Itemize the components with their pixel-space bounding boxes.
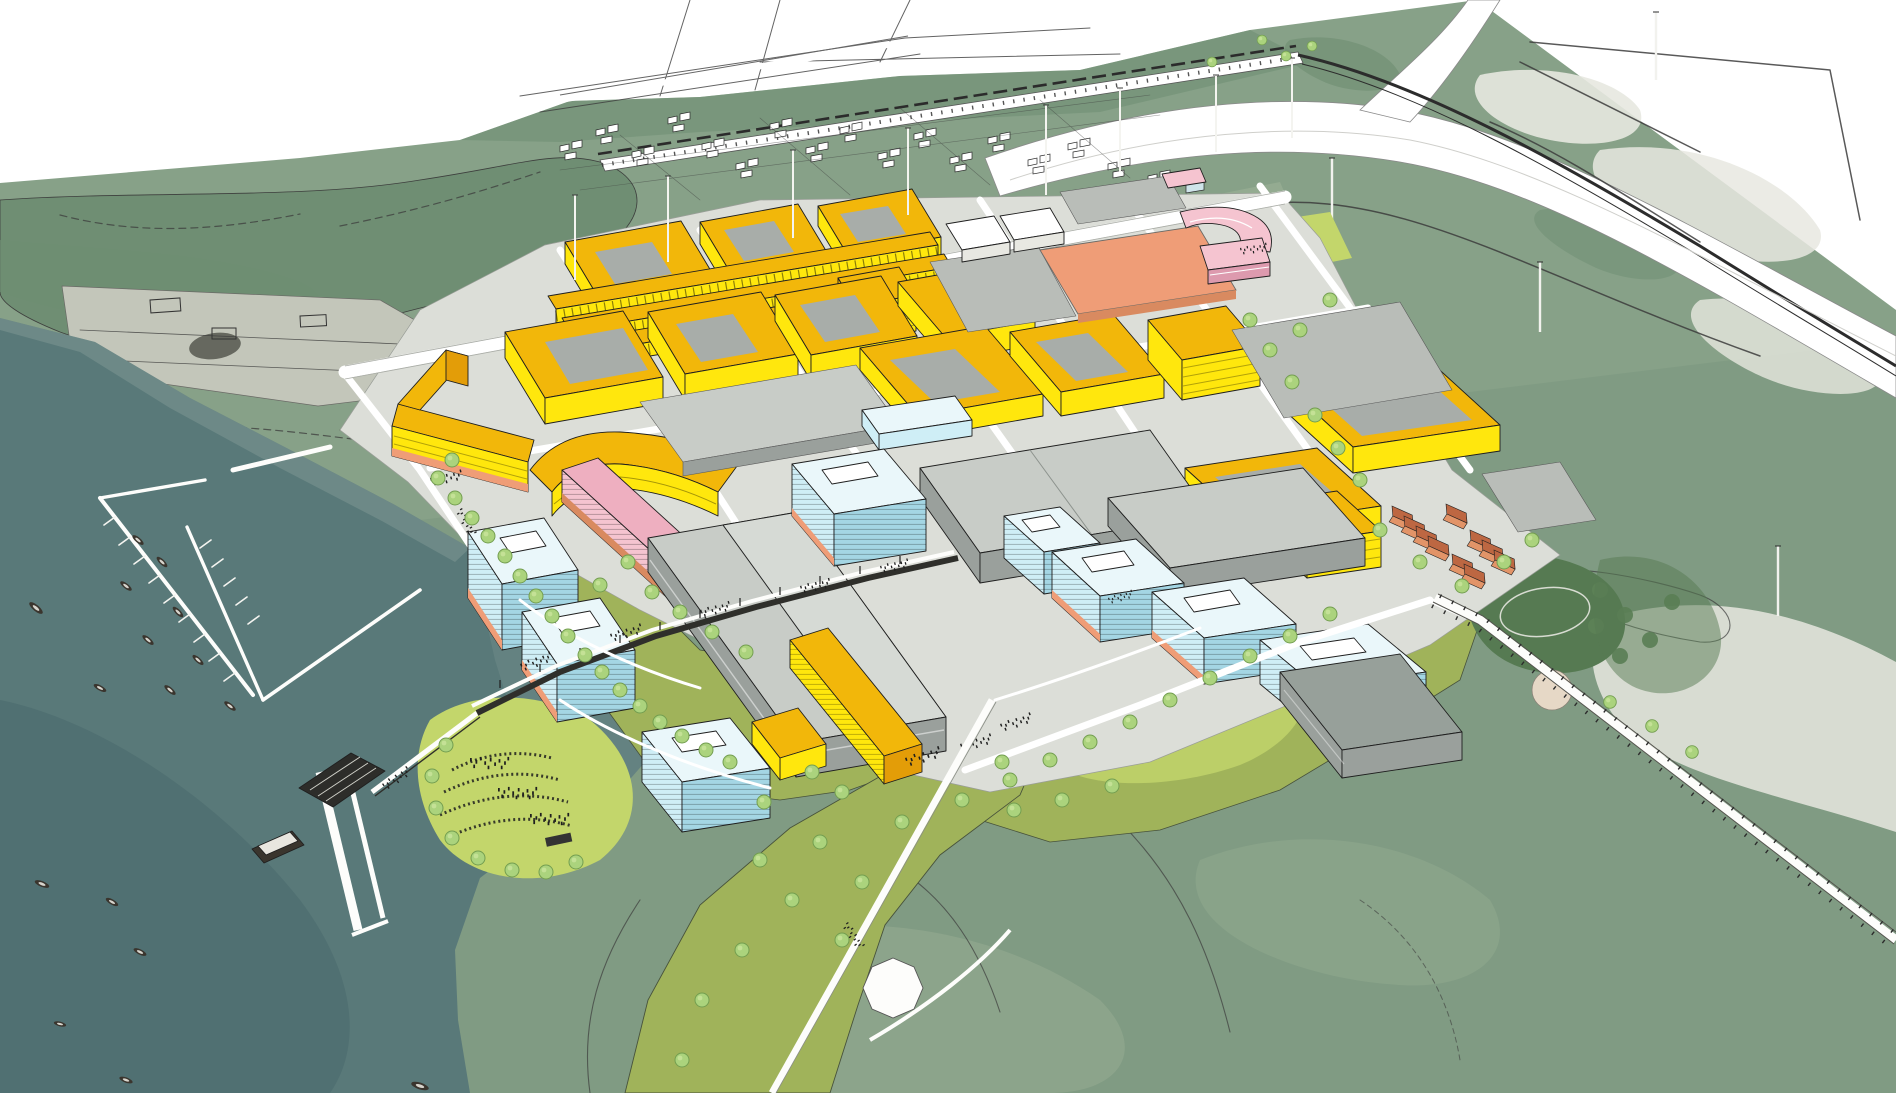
masterplan-rendering <box>0 0 1896 1093</box>
octagon-plaza <box>863 958 923 1018</box>
